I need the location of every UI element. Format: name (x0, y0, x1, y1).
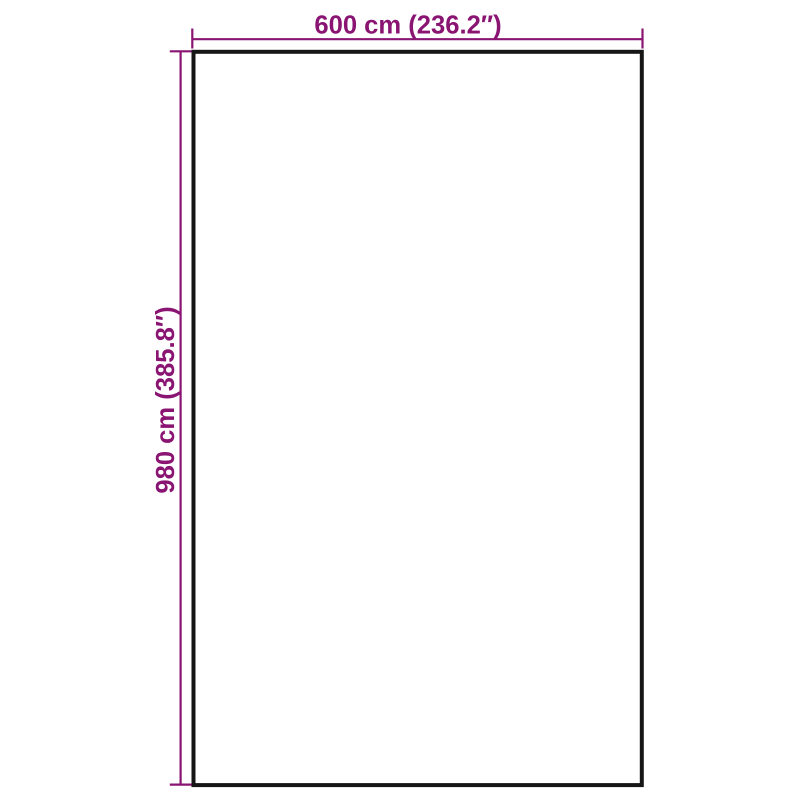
svg-text:600 cm (236.2″): 600 cm (236.2″) (314, 11, 501, 39)
svg-text:980 cm (385.8″): 980 cm (385.8″) (152, 306, 180, 493)
